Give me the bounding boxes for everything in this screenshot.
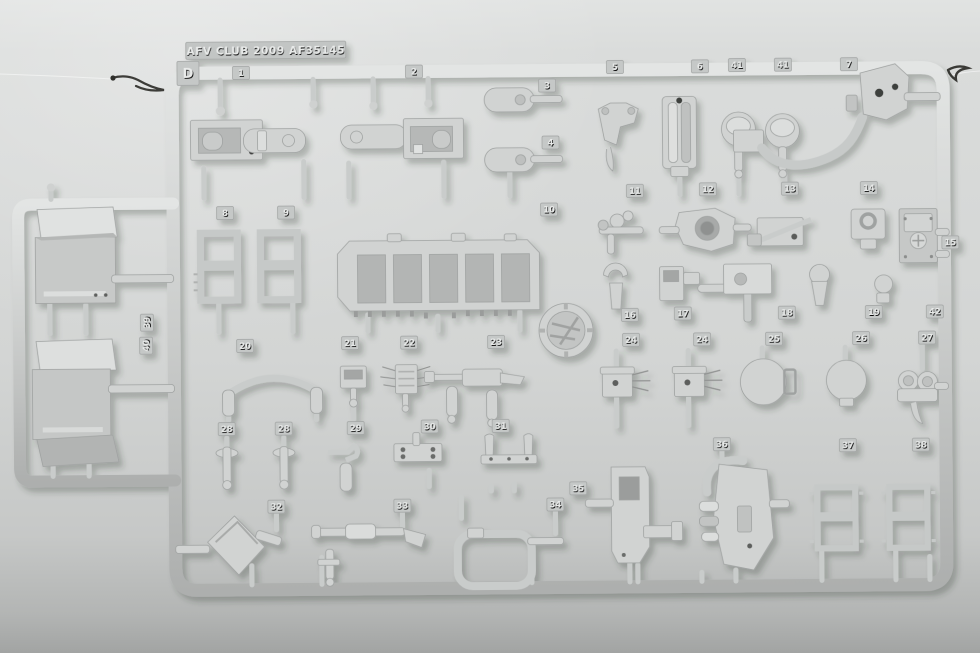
part-tag-1: 11 bbox=[232, 66, 249, 79]
svg-text:28: 28 bbox=[221, 425, 233, 435]
part-tag-4: 44 bbox=[542, 136, 559, 149]
svg-text:41: 41 bbox=[777, 61, 789, 71]
svg-text:18: 18 bbox=[781, 309, 793, 319]
part-tag-14: 1414 bbox=[860, 181, 877, 194]
svg-text:19: 19 bbox=[868, 308, 880, 318]
part-tag-41: 4141 bbox=[774, 58, 791, 71]
part-tag-26: 2626 bbox=[853, 332, 870, 345]
svg-text:16: 16 bbox=[624, 311, 636, 321]
part-42 bbox=[875, 275, 893, 303]
sprue-photo: AFV CLUB 2009 AF35145 AFV CLUB 2009 AF35… bbox=[0, 0, 980, 653]
part-tag-22: 2222 bbox=[401, 336, 418, 349]
svg-text:23: 23 bbox=[490, 338, 502, 348]
svg-text:D: D bbox=[183, 67, 194, 82]
part-tag-12: 1212 bbox=[699, 183, 716, 196]
svg-text:20: 20 bbox=[239, 342, 251, 352]
svg-text:21: 21 bbox=[344, 339, 356, 349]
svg-text:24: 24 bbox=[696, 335, 708, 345]
part-tag-19: 1919 bbox=[865, 305, 882, 318]
part-tag-13: 1313 bbox=[781, 182, 798, 195]
part-tag-21: 2121 bbox=[342, 337, 359, 350]
svg-text:28: 28 bbox=[278, 425, 290, 435]
part-tag-29: 2929 bbox=[347, 421, 364, 434]
svg-text:40: 40 bbox=[142, 340, 152, 352]
part-tag-32: 3232 bbox=[268, 500, 285, 513]
part-tag-9: 99 bbox=[278, 206, 295, 219]
part-tag-17: 1717 bbox=[674, 307, 691, 320]
svg-text:2: 2 bbox=[411, 68, 417, 78]
part-tag-24: 2424 bbox=[694, 333, 711, 346]
svg-text:31: 31 bbox=[495, 422, 507, 432]
part-tag-42: 4242 bbox=[926, 305, 943, 318]
part-tag-6: 66 bbox=[691, 60, 708, 73]
part-tag-33: 3333 bbox=[394, 499, 411, 512]
photo-page: { "photo": { "brand_plate_text": "AFV CL… bbox=[0, 0, 980, 653]
svg-text:22: 22 bbox=[403, 339, 415, 349]
part-tag-41: 4141 bbox=[728, 58, 745, 71]
part-tag-2: 22 bbox=[405, 65, 422, 78]
svg-text:26: 26 bbox=[855, 334, 867, 344]
part-tag-D: DD bbox=[177, 61, 199, 85]
part-tag-15: 1515 bbox=[942, 236, 959, 249]
svg-text:14: 14 bbox=[863, 184, 875, 194]
svg-text:10: 10 bbox=[543, 206, 555, 216]
part-tag-40: 4040 bbox=[140, 337, 153, 354]
svg-text:6: 6 bbox=[697, 62, 703, 72]
svg-text:4: 4 bbox=[548, 139, 554, 149]
svg-text:35: 35 bbox=[572, 484, 584, 494]
svg-text:11: 11 bbox=[629, 187, 641, 197]
svg-text:37: 37 bbox=[842, 441, 854, 451]
svg-text:32: 32 bbox=[270, 503, 282, 513]
part-tag-11: 1111 bbox=[626, 184, 643, 197]
svg-text:29: 29 bbox=[350, 424, 362, 434]
part-6 bbox=[662, 96, 697, 176]
svg-text:34: 34 bbox=[549, 501, 561, 511]
svg-text:13: 13 bbox=[784, 185, 796, 195]
svg-text:1: 1 bbox=[238, 69, 244, 79]
part-tag-35: 3535 bbox=[570, 482, 587, 495]
rail-row4-right bbox=[567, 428, 946, 431]
part-tag-39: 3939 bbox=[140, 314, 153, 331]
part-tag-28: 2828 bbox=[275, 422, 292, 435]
svg-text:41: 41 bbox=[731, 61, 743, 71]
part-10 bbox=[337, 233, 540, 320]
svg-text:3: 3 bbox=[544, 82, 550, 92]
part-tag-37: 3737 bbox=[839, 439, 856, 452]
svg-text:39: 39 bbox=[143, 317, 153, 329]
part-tag-16: 1616 bbox=[621, 308, 638, 321]
svg-text:25: 25 bbox=[768, 335, 780, 345]
svg-text:17: 17 bbox=[677, 309, 689, 319]
rail-vertical-top-right bbox=[599, 70, 600, 200]
brand-text: AFV CLUB 2009 AF35145 bbox=[186, 45, 345, 58]
part-tag-38: 3838 bbox=[912, 438, 929, 451]
svg-text:33: 33 bbox=[396, 502, 408, 512]
part-tag-23: 2323 bbox=[488, 335, 505, 348]
part-tag-10: 1010 bbox=[541, 203, 558, 216]
svg-text:42: 42 bbox=[929, 308, 941, 318]
part-tag-34: 3434 bbox=[547, 498, 564, 511]
rail-row5-left bbox=[175, 490, 567, 493]
brand-plate: AFV CLUB 2009 AF35145 AFV CLUB 2009 AF35… bbox=[186, 41, 346, 59]
rail-row3 bbox=[19, 331, 945, 338]
svg-text:7: 7 bbox=[846, 60, 852, 70]
svg-text:15: 15 bbox=[944, 238, 956, 248]
part-tag-36: 3636 bbox=[713, 438, 730, 451]
part-tag-20: 2020 bbox=[237, 339, 254, 352]
svg-text:24: 24 bbox=[625, 336, 637, 346]
svg-text:27: 27 bbox=[921, 334, 933, 344]
svg-text:36: 36 bbox=[716, 440, 728, 450]
part-tag-27: 2727 bbox=[919, 331, 936, 344]
rail-row2 bbox=[18, 197, 944, 204]
part-tag-30: 3030 bbox=[421, 420, 438, 433]
svg-text:5: 5 bbox=[612, 63, 618, 73]
part-tag-8: 88 bbox=[217, 207, 234, 220]
svg-text:8: 8 bbox=[222, 209, 228, 219]
svg-text:30: 30 bbox=[424, 422, 436, 432]
part-tag-3: 33 bbox=[539, 79, 556, 92]
part-tag-18: 1818 bbox=[778, 306, 795, 319]
svg-text:38: 38 bbox=[915, 441, 927, 451]
part-tag-24: 2424 bbox=[623, 333, 640, 346]
part-tag-5: 55 bbox=[606, 60, 623, 73]
part-tag-28: 2828 bbox=[218, 423, 235, 436]
part-tag-31: 3131 bbox=[492, 419, 509, 432]
part-tag-25: 2525 bbox=[766, 332, 783, 345]
part-tag-7: 77 bbox=[840, 58, 857, 71]
svg-text:9: 9 bbox=[283, 209, 289, 219]
svg-text:12: 12 bbox=[702, 185, 714, 195]
part-center-hatch bbox=[539, 303, 593, 357]
